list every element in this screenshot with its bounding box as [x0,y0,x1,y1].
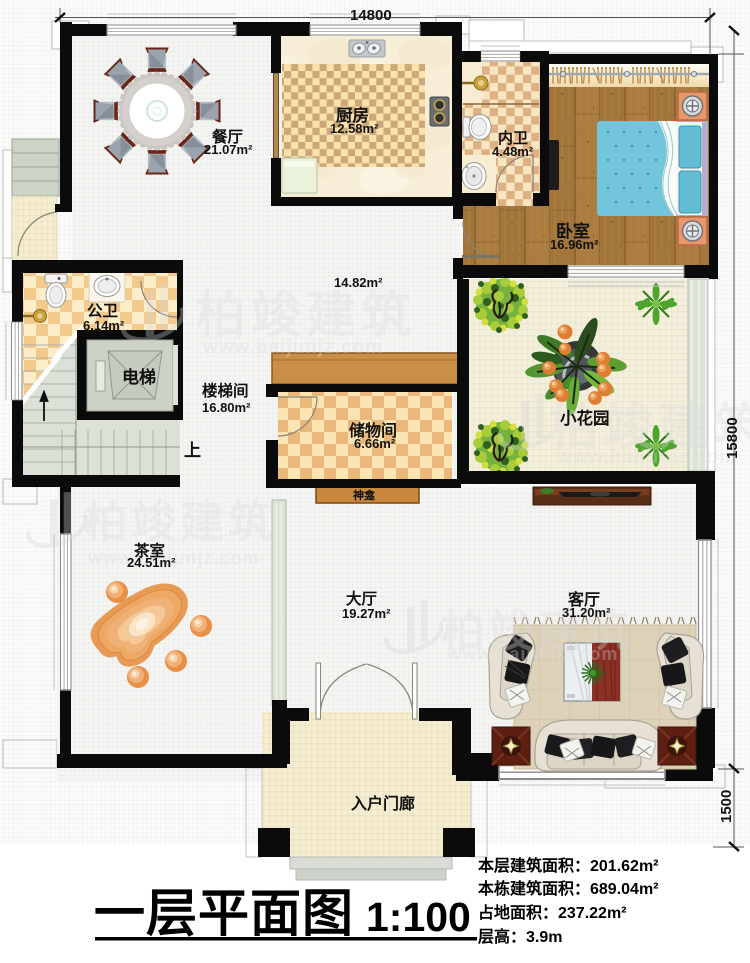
svg-text:本层建筑面积：201.62m²: 本层建筑面积：201.62m² [478,856,659,875]
svg-text:层高：3.9m: 层高：3.9m [478,927,562,946]
svg-text:柏竣建筑: 柏竣建筑 [196,287,416,343]
svg-text:6.66m²: 6.66m² [354,436,396,451]
svg-text:上: 上 [184,441,201,460]
svg-text:24.51m²: 24.51m² [127,555,176,570]
svg-text:本栋建筑面积：689.04m²: 本栋建筑面积：689.04m² [478,879,659,898]
svg-text:15800: 15800 [724,417,741,459]
svg-text:柏竣建筑: 柏竣建筑 [84,498,276,547]
svg-text:1500: 1500 [718,790,735,823]
svg-text:6.14m²: 6.14m² [83,318,125,333]
svg-text:楼梯间: 楼梯间 [202,381,249,400]
svg-text:入户门廊: 入户门廊 [351,794,415,813]
svg-text:神龛: 神龛 [353,488,376,502]
svg-text:14800: 14800 [350,7,392,24]
svg-text:16.80m²: 16.80m² [202,400,251,415]
svg-text:电梯: 电梯 [122,367,156,387]
svg-text:19.27m²: 19.27m² [342,606,391,621]
svg-text:占地面积：237.22m²: 占地面积：237.22m² [478,903,627,922]
svg-text:1:100: 1:100 [366,894,471,940]
svg-text:一层平面图: 一层平面图 [94,885,354,942]
svg-text:www.baijunjz.com: www.baijunjz.com [202,337,383,358]
svg-text:16.96m²: 16.96m² [550,237,599,252]
svg-text:www.baijunjz.com: www.baijunjz.com [446,644,618,664]
svg-text:31.20m²: 31.20m² [562,605,611,620]
svg-text:小花园: 小花园 [560,408,610,428]
svg-text:12.58m²: 12.58m² [330,121,379,136]
svg-text:14.82m²: 14.82m² [334,275,383,290]
svg-text:4.48m²: 4.48m² [492,144,534,159]
svg-text:21.07m²: 21.07m² [204,142,253,157]
svg-text:www.baijunjz.com: www.baijunjz.com [556,447,737,468]
